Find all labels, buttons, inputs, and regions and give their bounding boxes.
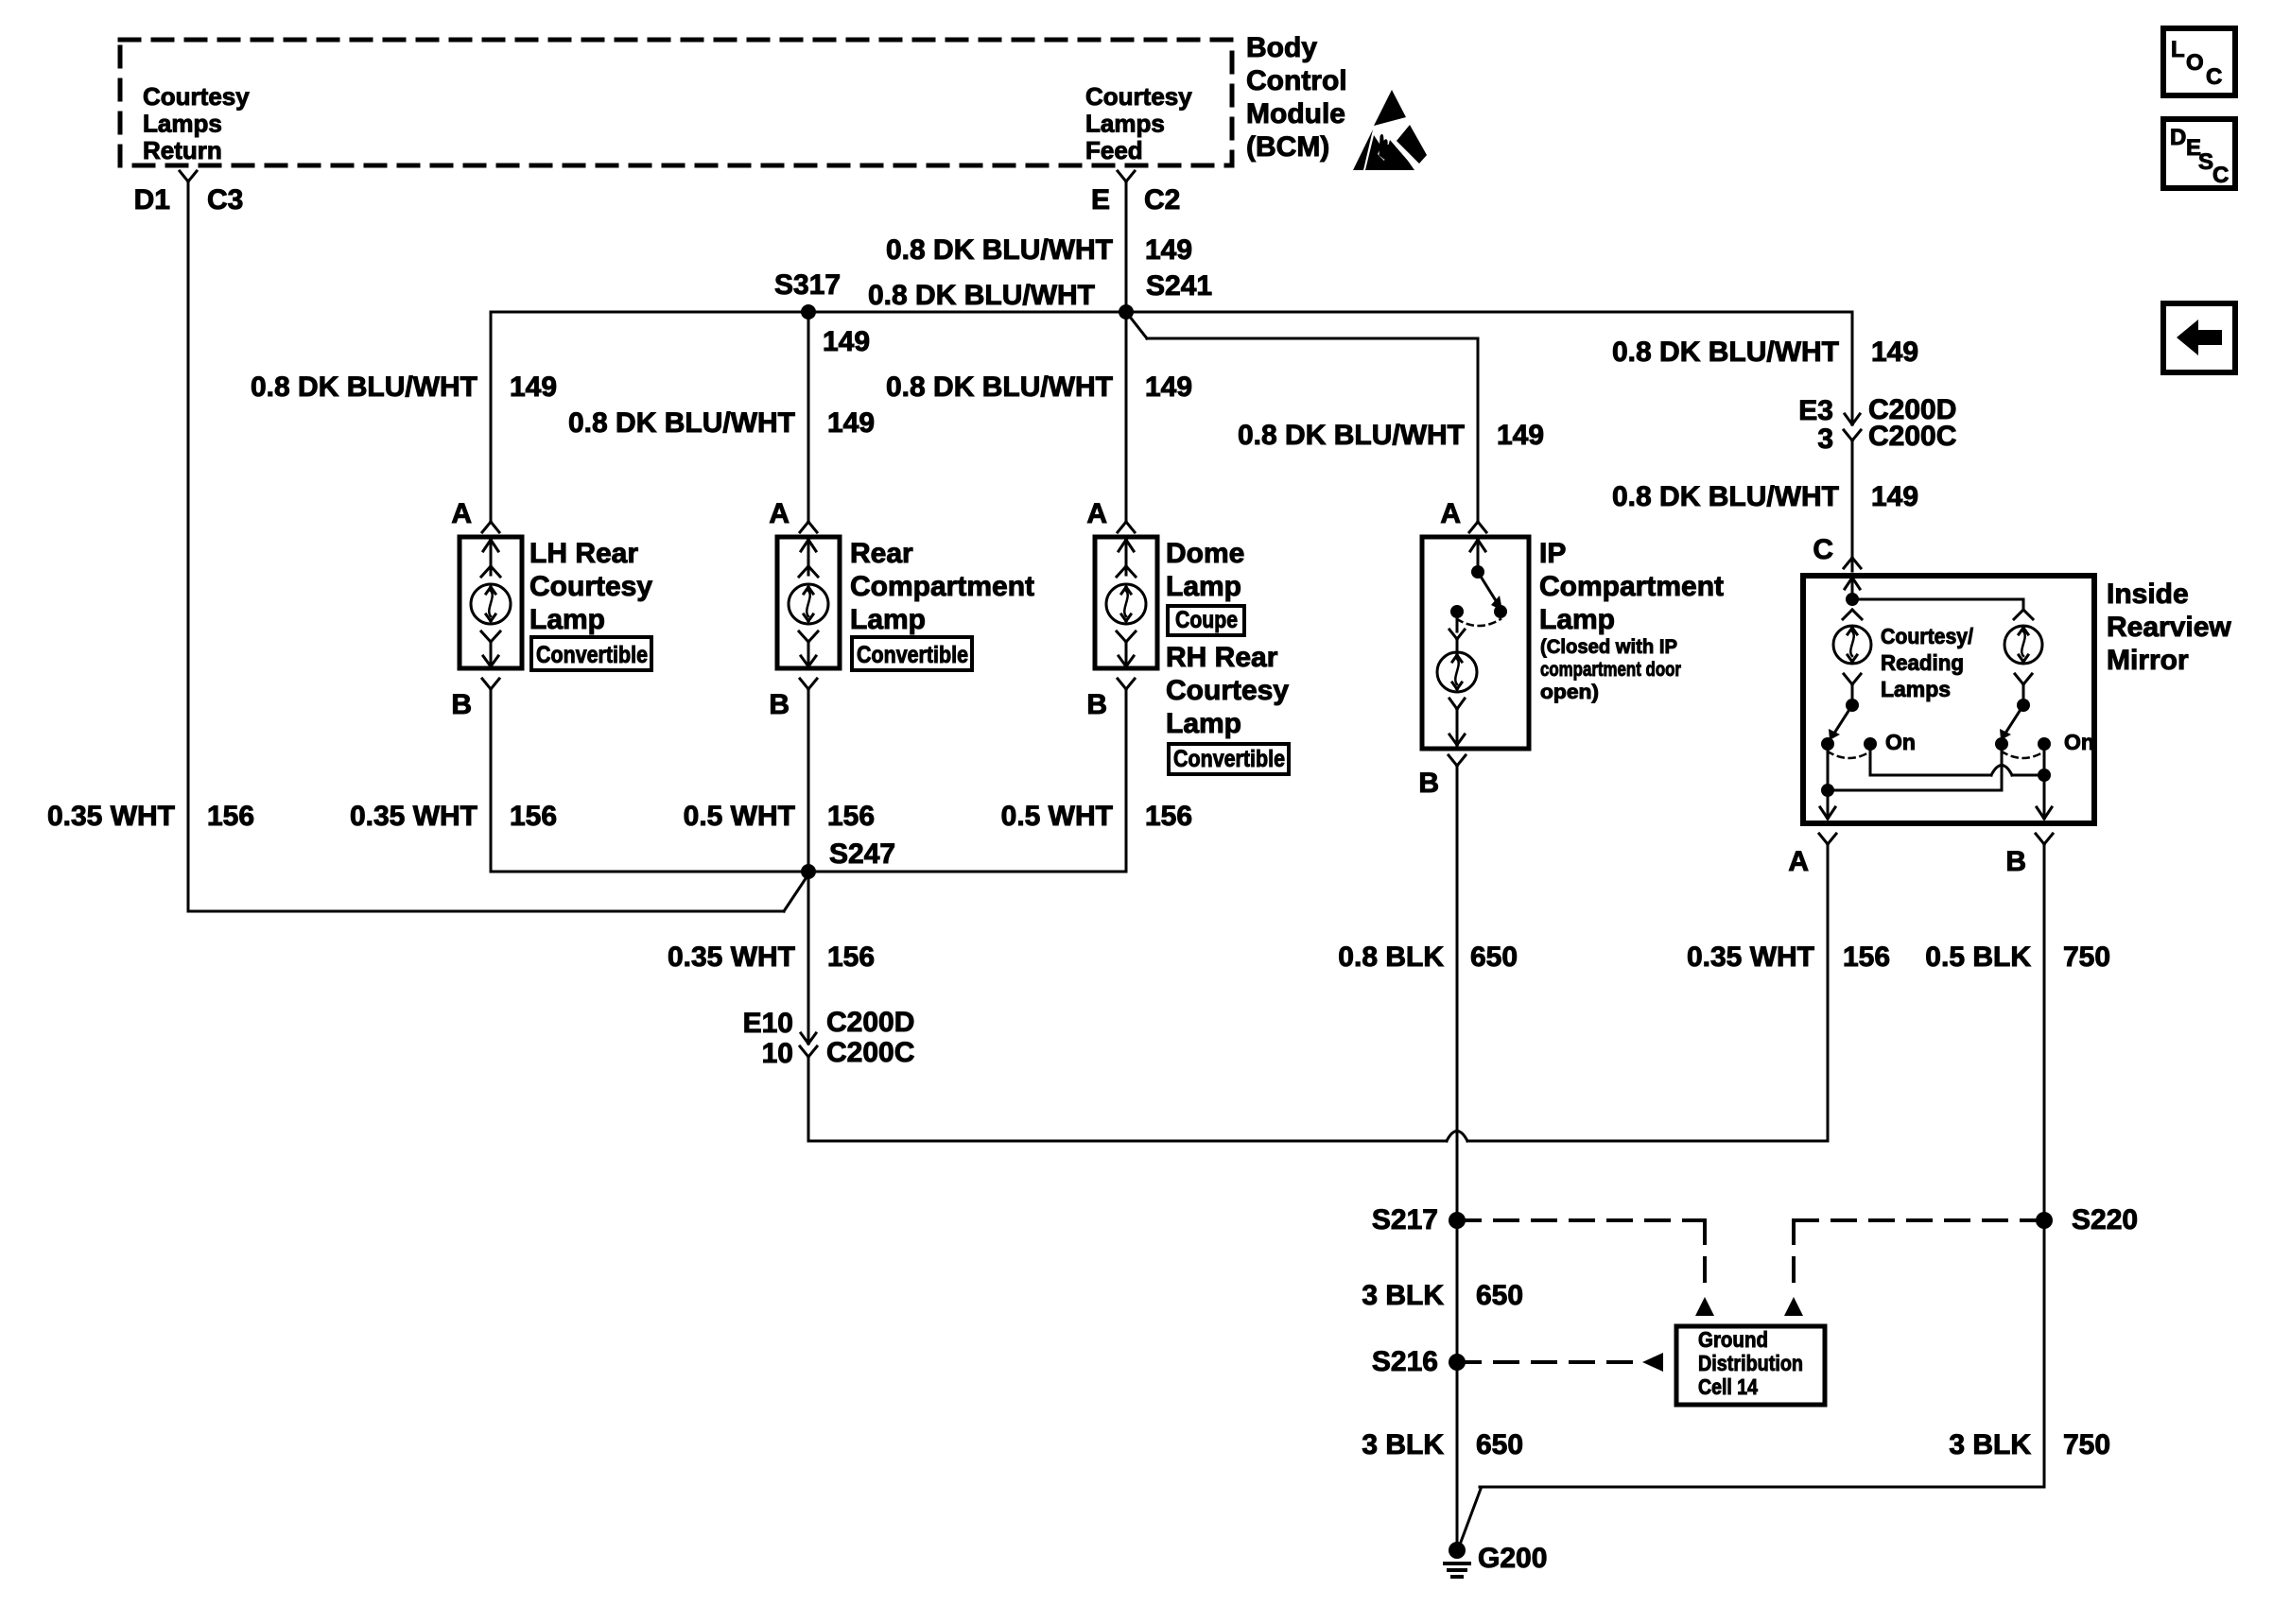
svg-text:Courtesy/: Courtesy/ <box>1881 624 1974 648</box>
svg-text:Coupe: Coupe <box>1175 607 1238 633</box>
svg-text:S217: S217 <box>1372 1204 1438 1235</box>
svg-text:156: 156 <box>827 801 875 832</box>
svg-text:open): open) <box>1540 682 1599 703</box>
svg-text:149: 149 <box>827 407 875 439</box>
svg-text:0.35 WHT: 0.35 WHT <box>668 942 795 973</box>
svg-text:156: 156 <box>510 801 557 832</box>
svg-text:Lamp: Lamp <box>529 604 605 635</box>
svg-text:S220: S220 <box>2072 1204 2138 1235</box>
svg-text:Lamps: Lamps <box>1085 110 1165 138</box>
svg-text:S216: S216 <box>1372 1346 1438 1377</box>
svg-text:Body: Body <box>1246 32 1317 63</box>
svg-text:E: E <box>1091 184 1110 216</box>
svg-text:Compartment: Compartment <box>1539 571 1724 602</box>
svg-text:Lamp: Lamp <box>850 604 926 635</box>
svg-text:650: 650 <box>1476 1280 1523 1311</box>
svg-text:A: A <box>1788 846 1809 877</box>
svg-text:S241: S241 <box>1146 270 1212 302</box>
svg-text:0.8 DK BLU/WHT: 0.8 DK BLU/WHT <box>868 280 1095 311</box>
svg-text:S: S <box>2198 149 2213 175</box>
svg-text:IP: IP <box>1539 538 1566 569</box>
svg-text:C200C: C200C <box>826 1037 914 1068</box>
svg-text:149: 149 <box>1497 420 1544 451</box>
svg-text:Lamp: Lamp <box>1166 708 1241 739</box>
svg-text:Feed: Feed <box>1085 136 1143 164</box>
svg-text:10: 10 <box>762 1038 793 1069</box>
svg-text:B: B <box>2005 846 2026 877</box>
svg-text:Convertible: Convertible <box>857 642 968 668</box>
svg-text:0.8 DK BLU/WHT: 0.8 DK BLU/WHT <box>568 407 795 439</box>
svg-text:0.8 DK BLU/WHT: 0.8 DK BLU/WHT <box>1612 481 1839 512</box>
svg-text:0.8 BLK: 0.8 BLK <box>1338 942 1444 973</box>
svg-text:0.35 WHT: 0.35 WHT <box>47 801 175 832</box>
svg-text:(Closed with IP: (Closed with IP <box>1540 636 1677 658</box>
svg-text:Lamps: Lamps <box>143 110 222 138</box>
svg-text:LH Rear: LH Rear <box>529 538 638 569</box>
svg-text:O: O <box>2186 50 2204 76</box>
svg-text:0.5 WHT: 0.5 WHT <box>684 801 795 832</box>
svg-text:149: 149 <box>1145 371 1192 403</box>
svg-text:Mirror: Mirror <box>2107 645 2189 676</box>
svg-text:Ground: Ground <box>1698 1327 1768 1352</box>
svg-text:3 BLK: 3 BLK <box>1362 1429 1444 1460</box>
svg-text:C200C: C200C <box>1868 421 1956 452</box>
svg-text:0.8 DK BLU/WHT: 0.8 DK BLU/WHT <box>1238 420 1465 451</box>
svg-text:C: C <box>2212 163 2229 188</box>
svg-text:149: 149 <box>510 371 557 403</box>
svg-text:0.35 WHT: 0.35 WHT <box>1687 942 1814 973</box>
svg-text:C200D: C200D <box>826 1007 914 1038</box>
svg-text:Rear: Rear <box>850 538 913 569</box>
svg-text:149: 149 <box>1871 481 1918 512</box>
svg-text:650: 650 <box>1476 1429 1523 1460</box>
svg-text:0.5 BLK: 0.5 BLK <box>1925 942 2031 973</box>
svg-text:compartment door: compartment door <box>1540 659 1681 681</box>
svg-text:Courtesy: Courtesy <box>529 571 652 602</box>
svg-text:C: C <box>1813 534 1833 565</box>
svg-text:149: 149 <box>823 326 870 357</box>
svg-text:156: 156 <box>1145 801 1192 832</box>
svg-text:A: A <box>1086 498 1107 529</box>
svg-text:B: B <box>451 689 472 720</box>
svg-text:Convertible: Convertible <box>536 642 648 668</box>
svg-text:0.8 DK BLU/WHT: 0.8 DK BLU/WHT <box>886 234 1113 266</box>
svg-text:0.8 DK BLU/WHT: 0.8 DK BLU/WHT <box>1612 337 1839 368</box>
svg-text:0.35 WHT: 0.35 WHT <box>350 801 477 832</box>
svg-text:E3: E3 <box>1798 395 1833 426</box>
svg-text:Return: Return <box>143 136 222 164</box>
svg-text:Cell 14: Cell 14 <box>1698 1374 1758 1399</box>
svg-text:156: 156 <box>827 942 875 973</box>
svg-text:C3: C3 <box>207 184 243 216</box>
svg-text:On: On <box>1885 730 1916 754</box>
svg-text:750: 750 <box>2063 1429 2110 1460</box>
svg-text:Module: Module <box>1246 98 1345 130</box>
svg-text:C: C <box>2206 64 2222 90</box>
svg-text:A: A <box>451 498 472 529</box>
svg-text:650: 650 <box>1470 942 1518 973</box>
svg-text:RH Rear: RH Rear <box>1166 642 1278 673</box>
svg-text:S247: S247 <box>829 838 895 870</box>
svg-text:0.8 DK BLU/WHT: 0.8 DK BLU/WHT <box>886 371 1113 403</box>
svg-text:Reading: Reading <box>1881 650 1964 675</box>
svg-text:156: 156 <box>207 801 254 832</box>
svg-text:G200: G200 <box>1478 1543 1547 1574</box>
svg-text:A: A <box>1440 498 1461 529</box>
svg-text:Distribution: Distribution <box>1698 1351 1803 1375</box>
svg-text:0.8 DK BLU/WHT: 0.8 DK BLU/WHT <box>251 371 477 403</box>
svg-text:Lamp: Lamp <box>1166 571 1241 602</box>
svg-text:B: B <box>769 689 789 720</box>
svg-text:Dome: Dome <box>1166 538 1244 569</box>
svg-text:3 BLK: 3 BLK <box>1949 1429 2031 1460</box>
svg-text:Courtesy: Courtesy <box>1085 82 1192 111</box>
svg-text:C2: C2 <box>1144 184 1180 216</box>
svg-text:L: L <box>2171 37 2185 62</box>
svg-text:Compartment: Compartment <box>850 571 1034 602</box>
svg-text:D1: D1 <box>134 184 170 216</box>
svg-text:Convertible: Convertible <box>1173 746 1285 772</box>
svg-text:Control: Control <box>1246 65 1347 96</box>
svg-text:156: 156 <box>1843 942 1890 973</box>
svg-text:Courtesy: Courtesy <box>143 82 250 111</box>
svg-text:B: B <box>1418 768 1439 799</box>
svg-text:0.5 WHT: 0.5 WHT <box>1001 801 1113 832</box>
svg-text:(BCM): (BCM) <box>1246 131 1329 163</box>
svg-text:On: On <box>2064 730 2094 754</box>
svg-text:E10: E10 <box>743 1008 793 1039</box>
svg-text:S317: S317 <box>774 269 841 301</box>
svg-text:B: B <box>1086 689 1107 720</box>
svg-text:Lamp: Lamp <box>1539 604 1615 635</box>
svg-text:750: 750 <box>2063 942 2110 973</box>
svg-text:Inside: Inside <box>2107 579 2189 610</box>
svg-text:Rearview: Rearview <box>2107 612 2231 643</box>
svg-text:D: D <box>2170 125 2186 150</box>
svg-text:3: 3 <box>1817 423 1833 455</box>
svg-text:3 BLK: 3 BLK <box>1362 1280 1444 1311</box>
svg-text:Courtesy: Courtesy <box>1166 675 1289 706</box>
svg-text:Lamps: Lamps <box>1881 677 1951 701</box>
svg-text:149: 149 <box>1145 234 1192 266</box>
svg-text:149: 149 <box>1871 337 1918 368</box>
svg-text:A: A <box>769 498 789 529</box>
